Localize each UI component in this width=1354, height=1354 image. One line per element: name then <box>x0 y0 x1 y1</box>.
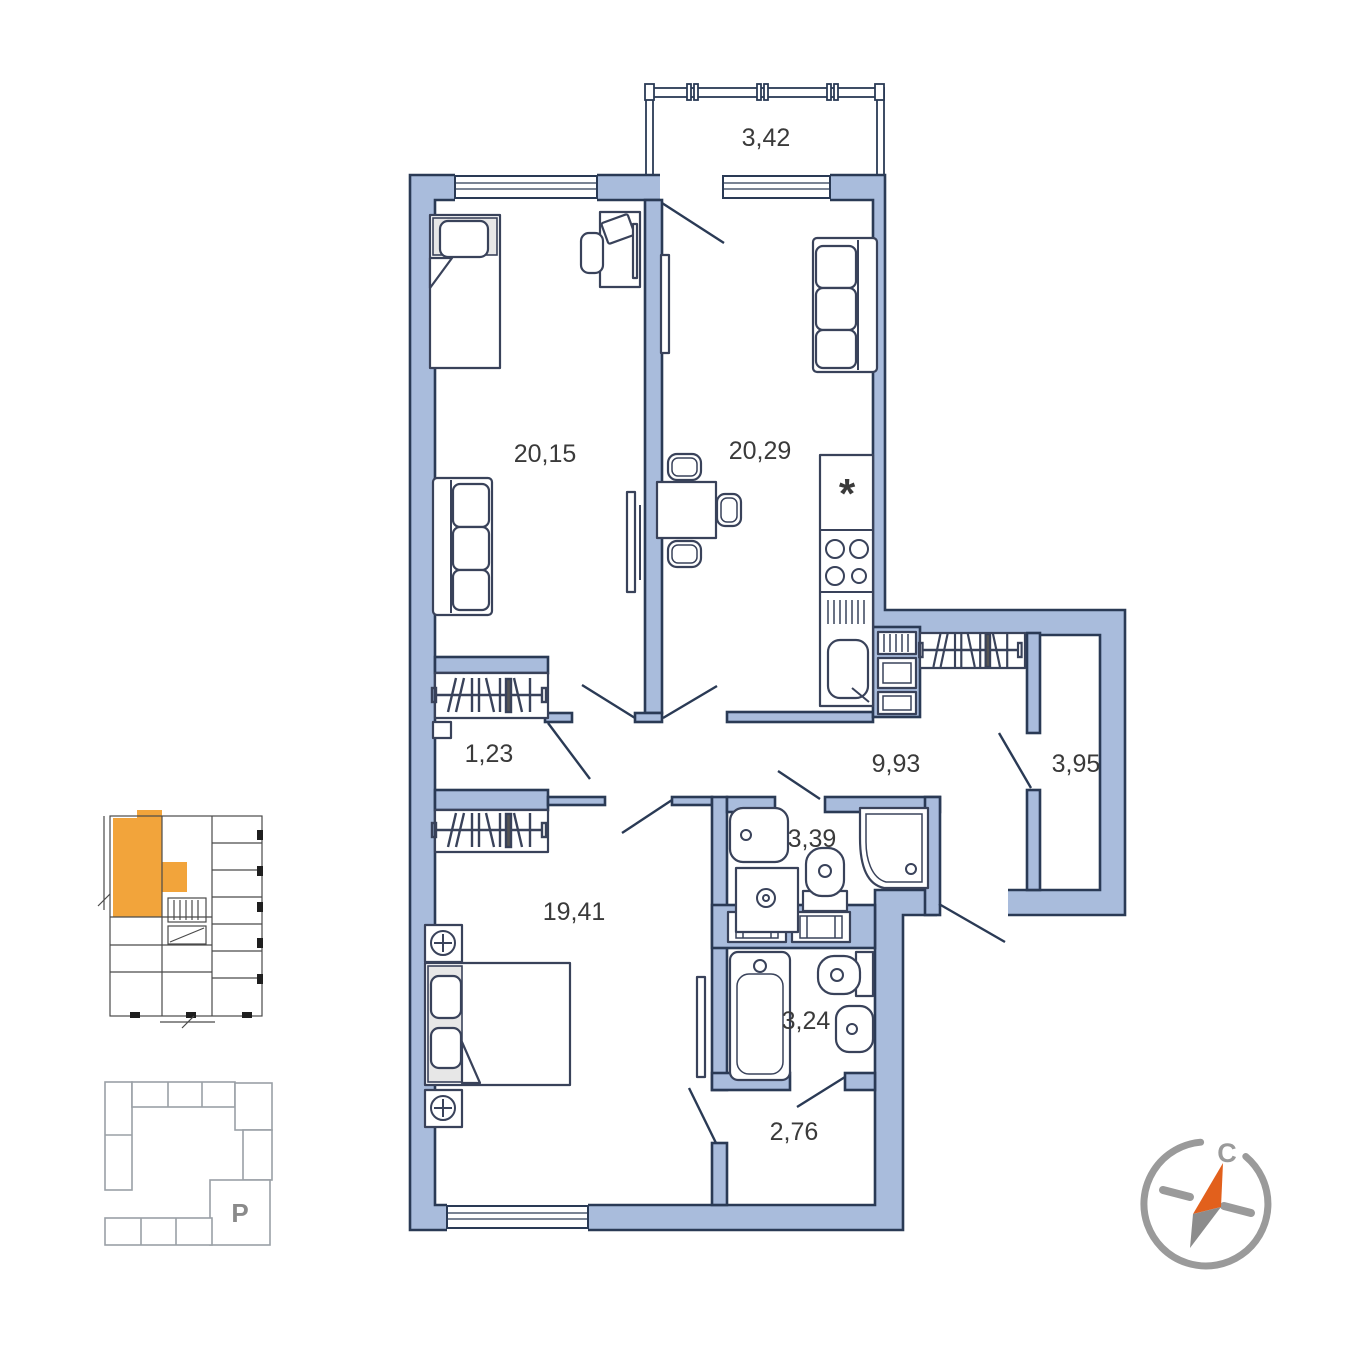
window-kitchen <box>723 176 830 198</box>
door-entry-hall <box>689 1088 716 1143</box>
door-bedroom-1 <box>582 685 635 718</box>
dining-table-icon <box>657 454 741 567</box>
door-bathroom <box>797 1077 845 1107</box>
sofa-bedroom-icon <box>433 478 492 615</box>
nightstand-icon <box>425 1090 462 1127</box>
floor-plan-page: 3,42 20,15 20,29 1,23 9,93 3,95 3,39 19,… <box>0 0 1354 1354</box>
room-area-bathroom: 3,24 <box>782 1007 831 1035</box>
sink-bathroom-icon <box>836 1006 873 1052</box>
door-corridor <box>548 723 590 779</box>
building-floor-minimap <box>98 810 263 1028</box>
door-kitchen <box>663 686 717 718</box>
stairwell-icon <box>168 898 206 944</box>
parking-label: P <box>231 1198 248 1228</box>
room-area-shower: 3,39 <box>788 825 837 853</box>
room-area-balcony: 3,42 <box>742 124 791 152</box>
door-balcony <box>662 203 724 243</box>
door-shower-room <box>778 771 820 799</box>
wardrobe-bedroom-2 <box>432 810 548 852</box>
washing-machine-icon <box>736 868 798 932</box>
wardrobe-hallway <box>919 633 1025 668</box>
room-area-bedroom-2: 19,41 <box>543 898 606 926</box>
door-storage <box>999 733 1031 788</box>
tv-bedroom-2-icon <box>697 977 705 1077</box>
compass-north-label: С <box>1217 1138 1237 1168</box>
desk-icon <box>581 212 640 287</box>
toilet-shower-room-icon <box>803 848 847 911</box>
toilet-bathroom-icon <box>818 952 873 996</box>
wardrobe-corridor <box>432 673 548 718</box>
apartment-plan: 3,42 20,15 20,29 1,23 9,93 3,95 3,39 19,… <box>410 84 1125 1233</box>
room-area-hallway: 9,93 <box>872 750 921 778</box>
window-bedroom-1 <box>455 176 597 198</box>
door-bedroom-2 <box>622 800 672 833</box>
dish-rack-icon <box>828 600 864 624</box>
kitchen-sink-icon <box>828 640 869 702</box>
sink-shower-room-icon <box>730 808 788 862</box>
site-plan: P <box>105 1082 272 1245</box>
room-area-entry: 2,76 <box>770 1118 819 1146</box>
sofa-kitchen-icon <box>813 238 877 372</box>
floor-plan: 3,42 20,15 20,29 1,23 9,93 3,95 3,39 19,… <box>0 0 1354 1354</box>
compass-needle-north <box>1193 1163 1223 1214</box>
shower-cabin-icon <box>860 808 928 888</box>
compass: С <box>1144 1138 1268 1266</box>
room-area-corridor: 1,23 <box>465 740 514 768</box>
window-bedroom-2 <box>447 1206 588 1228</box>
tv-bedroom-1-icon <box>627 492 640 592</box>
bed-double-icon <box>425 963 570 1085</box>
nightstand-icon <box>425 925 462 962</box>
room-area-storage: 3,95 <box>1052 750 1101 778</box>
room-area-kitchen: 20,29 <box>729 437 792 465</box>
ventilation-shaft-kitchen <box>878 632 916 714</box>
radiator-icon <box>433 722 451 738</box>
room-area-bedroom-1: 20,15 <box>514 440 577 468</box>
fridge-icon: * <box>839 470 856 517</box>
tv-kitchen-icon <box>661 255 669 353</box>
bed-single-icon <box>430 215 500 368</box>
